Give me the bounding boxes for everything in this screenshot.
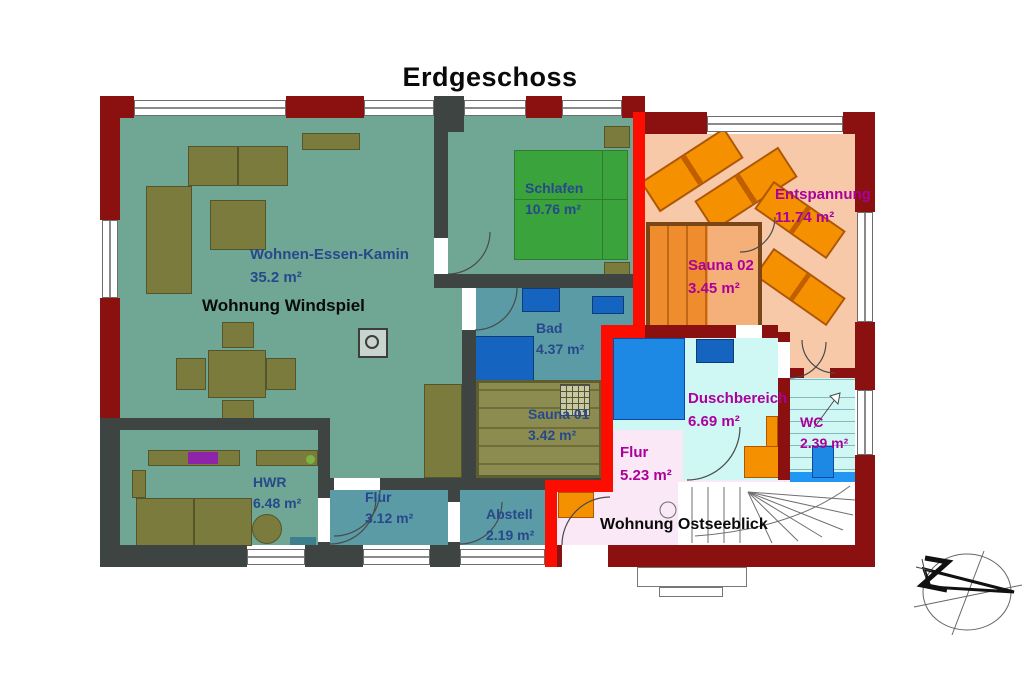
window [562,100,622,116]
wall [526,96,562,118]
wall [790,368,804,378]
door-opening [448,502,460,542]
room-name: HWR [253,472,301,493]
washer-icon [188,452,218,464]
room-area: 6.48 m² [253,493,301,514]
room-name: Duschbereich [688,388,787,411]
porch-steps [659,587,723,597]
room-name: Bad [536,318,584,339]
room-area: 5.23 m² [620,465,672,488]
coffee-table [210,200,266,250]
wall [645,112,707,134]
window [134,100,286,116]
dining-table [208,350,266,398]
window [102,220,118,298]
armchair [146,186,192,294]
dining-chair [222,322,254,348]
dining-chair [266,358,296,390]
dining-chair [176,358,206,390]
room-label-sauna02: Sauna 02 3.45 m² [688,255,754,300]
wall [855,322,875,390]
room-name: Flur [620,442,672,465]
window [857,390,873,455]
room-label-abstell: Abstell 2.19 m² [486,504,534,546]
entrance-door-opening [562,545,608,567]
door-opening [778,342,790,378]
hall-wardrobe [558,492,594,518]
porch-steps [637,567,747,587]
wardrobe [424,384,462,478]
apartment-label-windspiel: Wohnung Windspiel [202,296,365,316]
wall [830,368,855,378]
room-label-schlafen: Schlafen 10.76 m² [525,178,583,220]
room-label-duschbereich: Duschbereich 6.69 m² [688,388,787,433]
hwr-cabinet [132,470,146,498]
room-name: Sauna 02 [688,255,754,278]
wall [430,545,460,567]
bath-sink [592,296,624,314]
room-area: 4.37 m² [536,339,584,360]
room-label-bad: Bad 4.37 m² [536,318,584,360]
room-area: 11.74 m² [775,207,871,230]
room-label-wc: WC 2.39 m² [800,412,848,454]
hwr-counter [136,498,252,546]
wall [434,118,448,238]
wall [305,545,363,567]
fireplace-ring [365,335,379,349]
wall [100,545,247,567]
room-area: 6.69 m² [688,411,787,434]
room-area: 10.76 m² [525,199,583,220]
room-area: 3.45 m² [688,278,754,301]
wall [100,298,120,422]
room-label-hwr: HWR 6.48 m² [253,472,301,514]
hwr-bin [252,514,282,544]
staircase-area [678,482,855,545]
status-dot [306,455,315,464]
room-name: WC [800,412,848,433]
window [363,549,430,565]
window [464,100,526,116]
room-area: 2.19 m² [486,525,534,546]
room-name: Flur [365,487,413,508]
wall [100,96,120,220]
room-name: Entspannung [775,184,871,207]
room-area: 35.2 m² [250,267,409,290]
door-opening [736,325,762,338]
room-area: 3.42 m² [528,425,589,446]
divider-wall [545,480,557,567]
sauna-bench [744,446,780,478]
shower [613,338,685,420]
room-area: 3.12 m² [365,508,413,529]
room-label-sauna01: Sauna 01 3.42 m² [528,404,589,446]
wall [100,418,330,430]
room-name: Schlafen [525,178,583,199]
sideboard [302,133,360,150]
floorplan-canvas: Erdgeschoss Wohnen-Essen-Kamin 35.2 m² W… [0,0,1024,683]
room-name: Wohnen-Essen-Kamin [250,244,409,267]
window [707,116,843,132]
room-label-flur-ostseeblick: Flur 5.23 m² [620,442,672,487]
window [247,549,305,565]
room-area: 2.39 m² [800,433,848,454]
room-name: Abstell [486,504,534,525]
bath-sink [522,288,560,312]
nightstand [604,126,630,148]
room-label-flur-windspiel: Flur 3.12 m² [365,487,413,529]
room-name: Sauna 01 [528,404,589,425]
apartment-label-ostseeblick: Wohnung Ostseeblick [600,516,768,534]
wall [286,96,364,118]
window [460,549,545,565]
bathtub [470,336,534,386]
sofa [188,146,288,186]
plan-title: Erdgeschoss [300,62,680,93]
hwr-mat [290,537,316,545]
door-opening [434,238,448,274]
door-opening [462,288,476,330]
divider-wall [633,112,645,338]
door-opening [318,498,330,542]
fireplace-icon [358,328,388,358]
divider-wall [601,325,613,492]
room-label-entspannung: Entspannung 11.74 m² [775,184,871,229]
shower-sink [696,339,734,363]
north-arrow [914,551,1022,635]
room-label-wohnen: Wohnen-Essen-Kamin 35.2 m² [250,244,409,289]
window [364,100,434,116]
